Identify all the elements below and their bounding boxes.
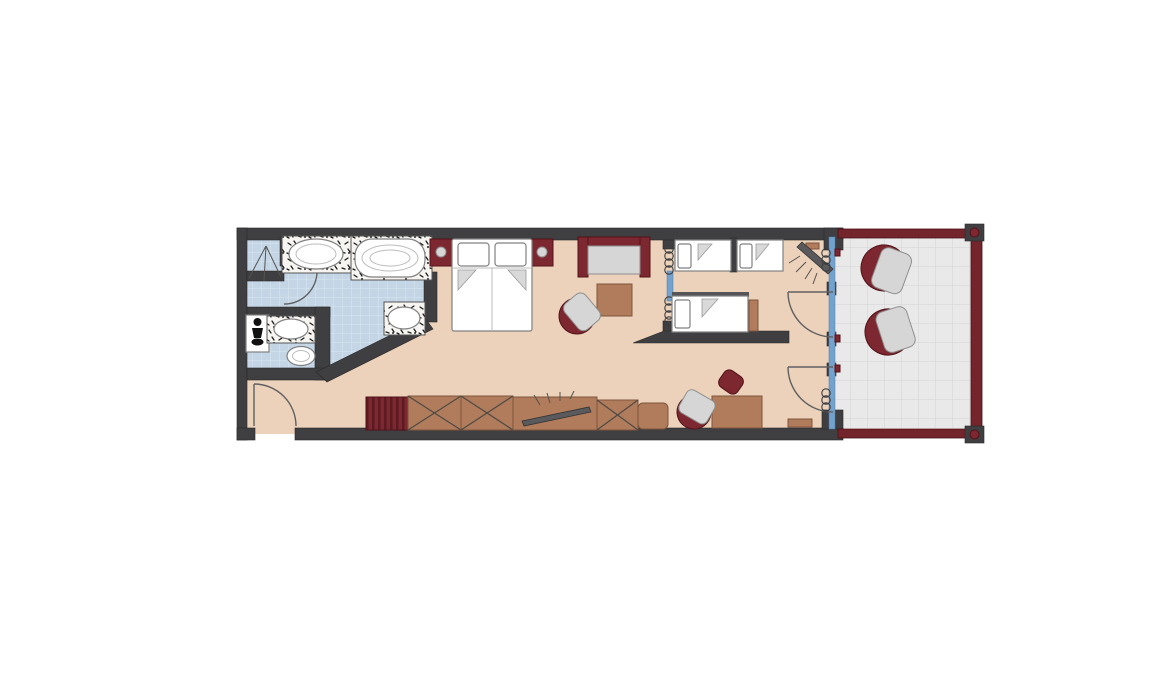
bathtub [351, 236, 432, 280]
pillow [495, 243, 526, 266]
floor-plan [0, 0, 1157, 700]
single-bed-2 [737, 240, 783, 271]
pillow [675, 300, 690, 328]
nightstand-right [531, 239, 553, 266]
pillow [740, 244, 752, 268]
lamp [537, 247, 547, 257]
wardrobe-2 [461, 396, 513, 430]
desk [712, 396, 762, 428]
wc-basin [274, 319, 308, 339]
wardrobe-1 [408, 396, 461, 430]
sideboard-end [638, 403, 668, 429]
double-bed [452, 239, 532, 331]
second-basin [388, 307, 420, 329]
sofa [578, 237, 650, 277]
second-basin-counter [384, 302, 425, 335]
coffee-table [597, 284, 632, 316]
bidet [287, 347, 315, 366]
wardrobe-3 [597, 400, 638, 430]
minibar-cabinet [366, 397, 408, 430]
nightstand-left [430, 239, 452, 266]
single-bed-3 [672, 292, 758, 332]
bench-cabinet [788, 419, 812, 427]
vanity-counter [282, 236, 351, 273]
lamp [436, 247, 446, 257]
tv-sideboard [513, 391, 597, 430]
pillow [678, 244, 691, 268]
bedside-shelf [749, 300, 758, 331]
single-bed-1 [675, 240, 731, 271]
pillow [458, 243, 489, 266]
floor-plan-canvas [0, 0, 1157, 700]
